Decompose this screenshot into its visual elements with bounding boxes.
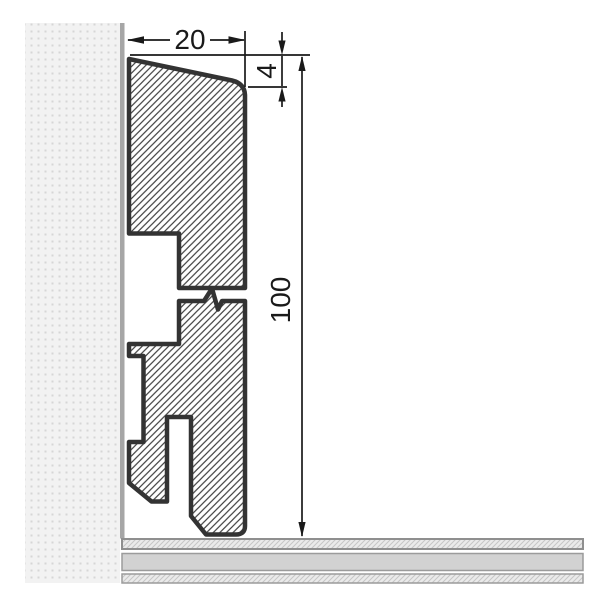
floor-top-layer	[122, 539, 583, 549]
technical-drawing: 20 4 100	[0, 0, 604, 604]
arrow-width-right	[229, 36, 246, 43]
arrow-height-top	[298, 56, 305, 71]
drawing-canvas: 20 4 100	[0, 0, 604, 604]
dim-width-label: 20	[174, 24, 205, 55]
floor-middle-layer	[122, 554, 583, 571]
arrow-chamfer-bottom	[278, 87, 285, 102]
skirting-profile-upper	[129, 59, 245, 288]
floor-bottom-layer	[122, 574, 583, 583]
arrow-width-left	[127, 36, 144, 43]
floor-section	[122, 539, 583, 583]
dim-chamfer-label: 4	[251, 63, 282, 79]
arrow-height-bottom	[298, 522, 305, 537]
arrow-chamfer-top	[278, 41, 285, 56]
skirting-profile-lower	[129, 289, 245, 535]
dim-height-label: 100	[265, 277, 296, 324]
wall-section	[25, 23, 120, 583]
wall-edge-line	[120, 23, 125, 539]
